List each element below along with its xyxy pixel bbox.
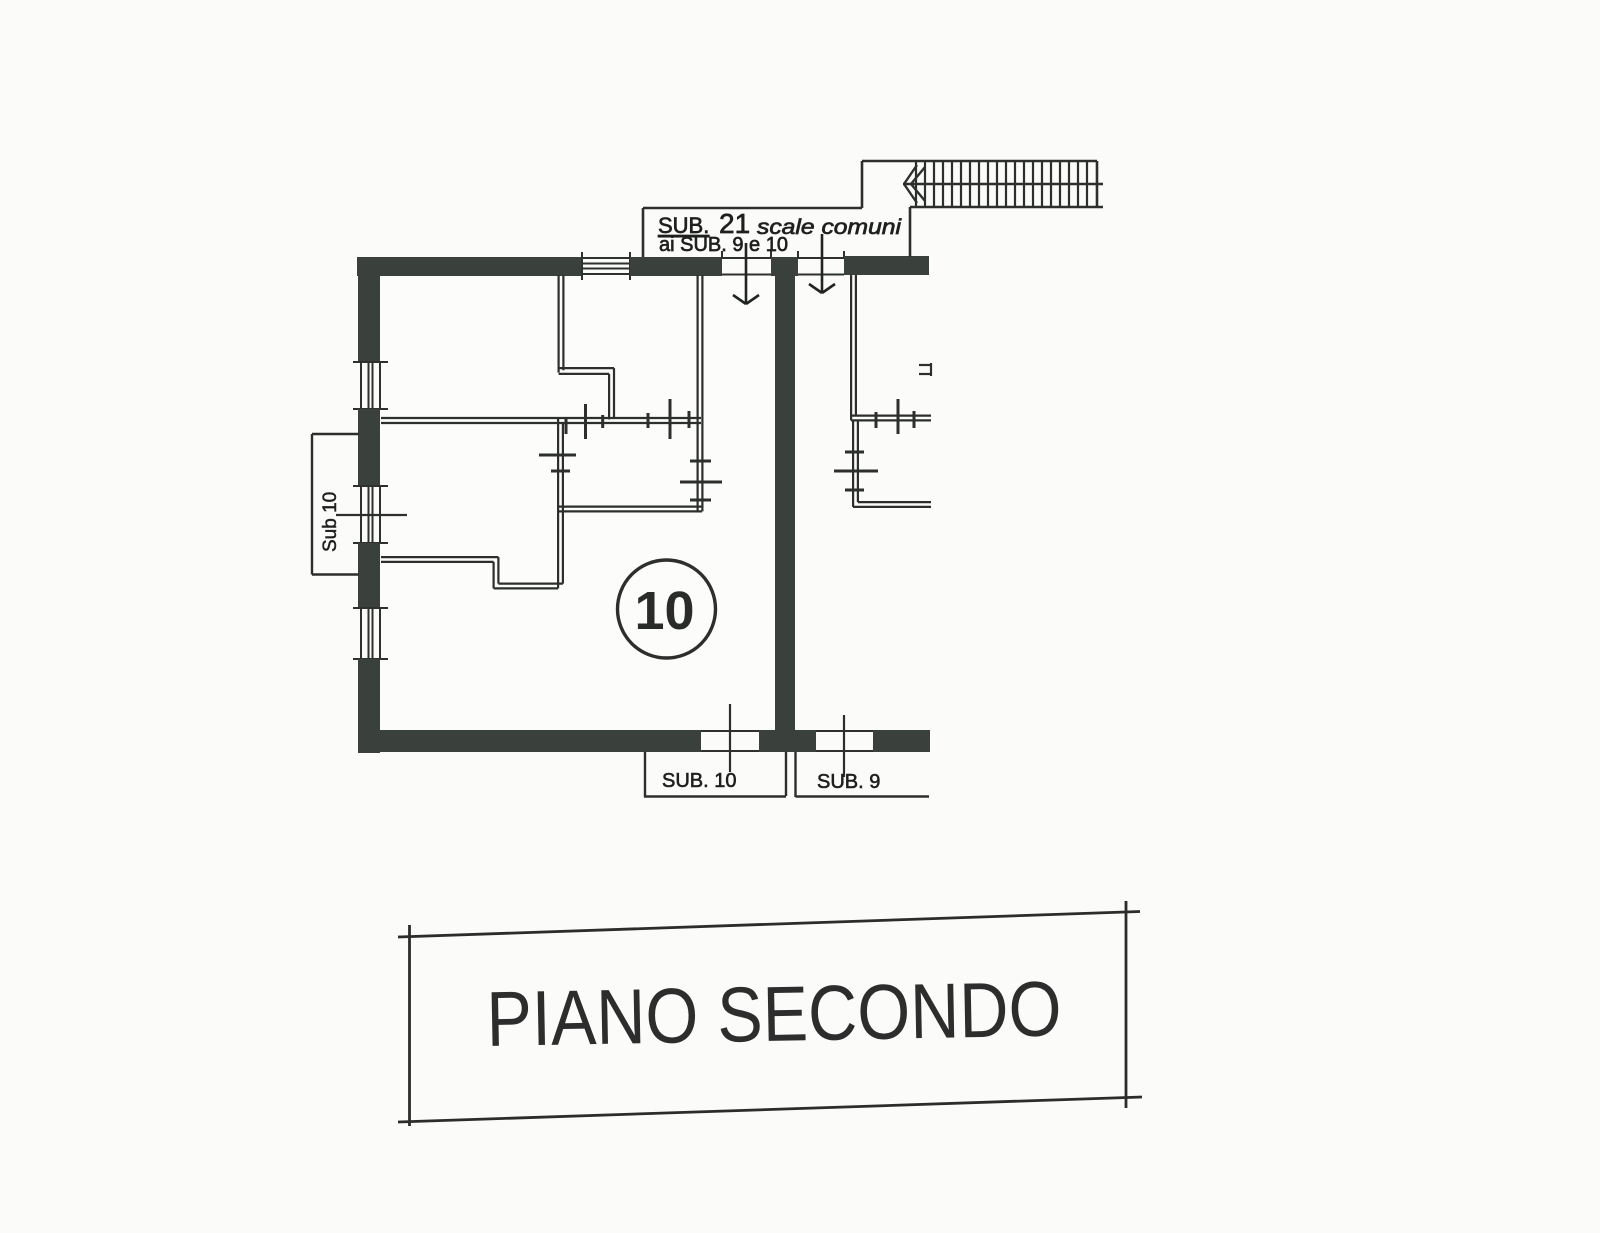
svg-text:Sub 10: Sub 10 [320, 492, 341, 552]
svg-text:SUB. 9: SUB. 9 [817, 771, 880, 793]
svg-text:10: 10 [634, 581, 694, 641]
svg-text:PIANO SECONDO: PIANO SECONDO [486, 964, 1063, 1063]
svg-text:ai SUB. 9 e 10: ai SUB. 9 e 10 [659, 234, 788, 256]
svg-text:SUB. 10: SUB. 10 [662, 770, 736, 792]
